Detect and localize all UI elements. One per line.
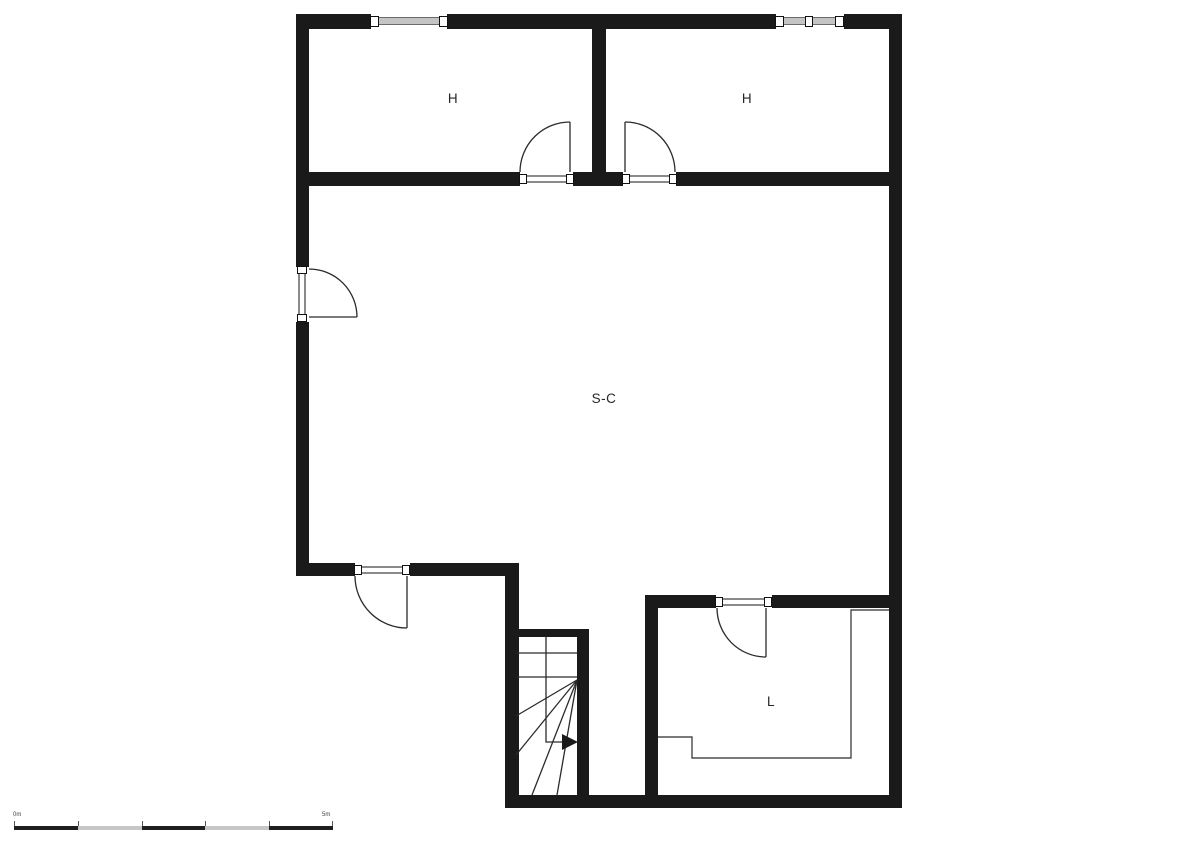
scale-segment: [142, 826, 205, 830]
stair-winder: [532, 680, 577, 795]
room-label-living: S-C: [574, 391, 634, 406]
scale-end-label: 5m: [322, 812, 330, 818]
scale-start-label: 0m: [13, 812, 21, 818]
floor-plan: H H S-C L 0m 5m: [0, 0, 1200, 849]
ceiling-line: [658, 610, 889, 758]
door-arc: [717, 608, 766, 657]
scale-segment: [269, 826, 333, 830]
scale-segment: [205, 826, 269, 830]
room-label-hall-right: H: [717, 91, 777, 106]
thin-lines-layer: [0, 0, 1200, 849]
room-label-l: L: [741, 694, 801, 709]
door-arc: [520, 122, 570, 172]
door-arc: [355, 576, 407, 628]
scale-segment: [14, 826, 78, 830]
door-arc: [625, 122, 675, 172]
room-label-hall-left: H: [423, 91, 483, 106]
scale-segment: [78, 826, 142, 830]
stair-direction-arrow: [562, 734, 578, 750]
door-arc: [309, 269, 357, 317]
